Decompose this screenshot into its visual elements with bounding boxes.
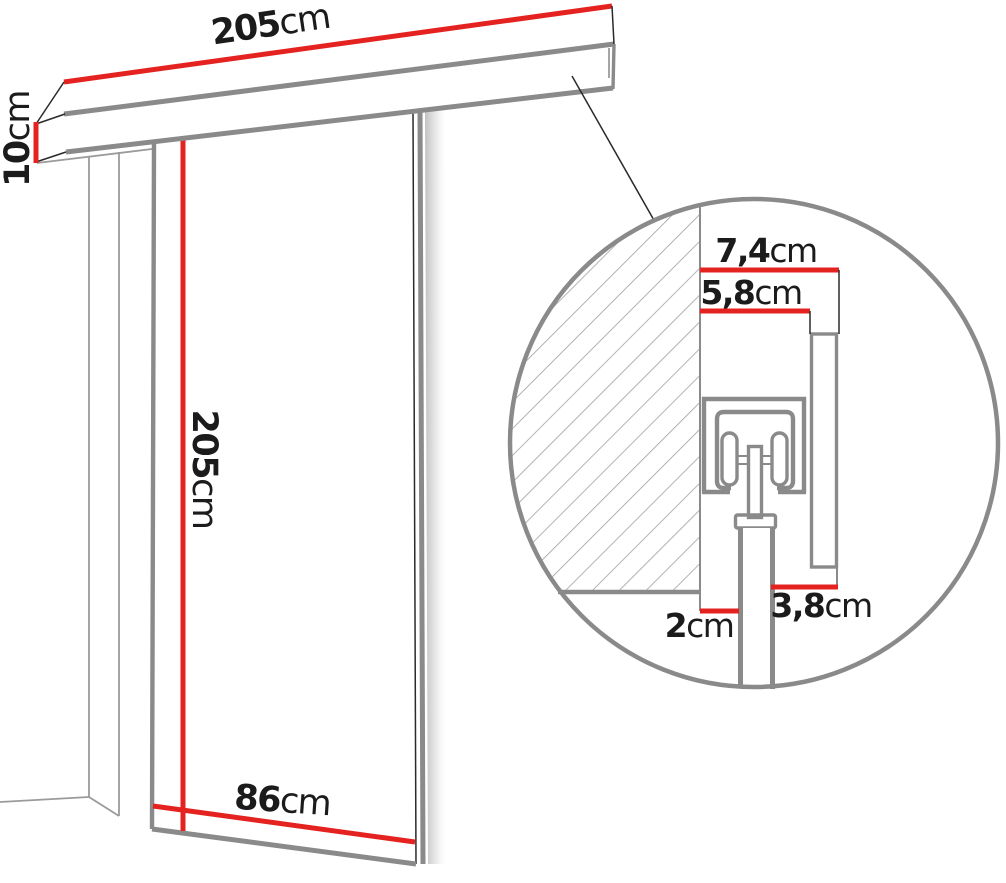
rail-height-label: 10cm <box>0 91 38 187</box>
track-depth-label: 5,8cm <box>700 273 801 312</box>
door-side-edge <box>420 109 423 864</box>
door-shadow <box>425 109 448 864</box>
wall-base-front-edge <box>89 797 119 816</box>
diagram-canvas: 205cm 10cm 205cm 86cm 7,4cm 5,8cm 3,8cm … <box>0 0 1006 883</box>
wall-to-door-label: 2cm <box>665 606 734 645</box>
door-width-label: 86cm <box>233 778 332 825</box>
door-section <box>739 527 774 689</box>
roller-right <box>772 433 787 485</box>
hatched-wall-section <box>509 205 700 592</box>
detail-pointer-line <box>572 76 655 222</box>
total-depth-label: 7,4cm <box>715 231 816 270</box>
sliding-door-diagram: 205cm 10cm 205cm 86cm 7,4cm 5,8cm 3,8cm … <box>0 0 1006 883</box>
door-section-fill <box>739 528 774 686</box>
rail-right-end-edge <box>613 44 614 89</box>
wall-base-left-edge <box>0 797 89 802</box>
door-to-fascia-label: 3,8cm <box>770 586 871 625</box>
door-left-edge <box>152 142 154 829</box>
roller-left <box>722 433 737 485</box>
wall-opening <box>0 149 152 816</box>
door-height-label: 205cm <box>184 410 224 529</box>
